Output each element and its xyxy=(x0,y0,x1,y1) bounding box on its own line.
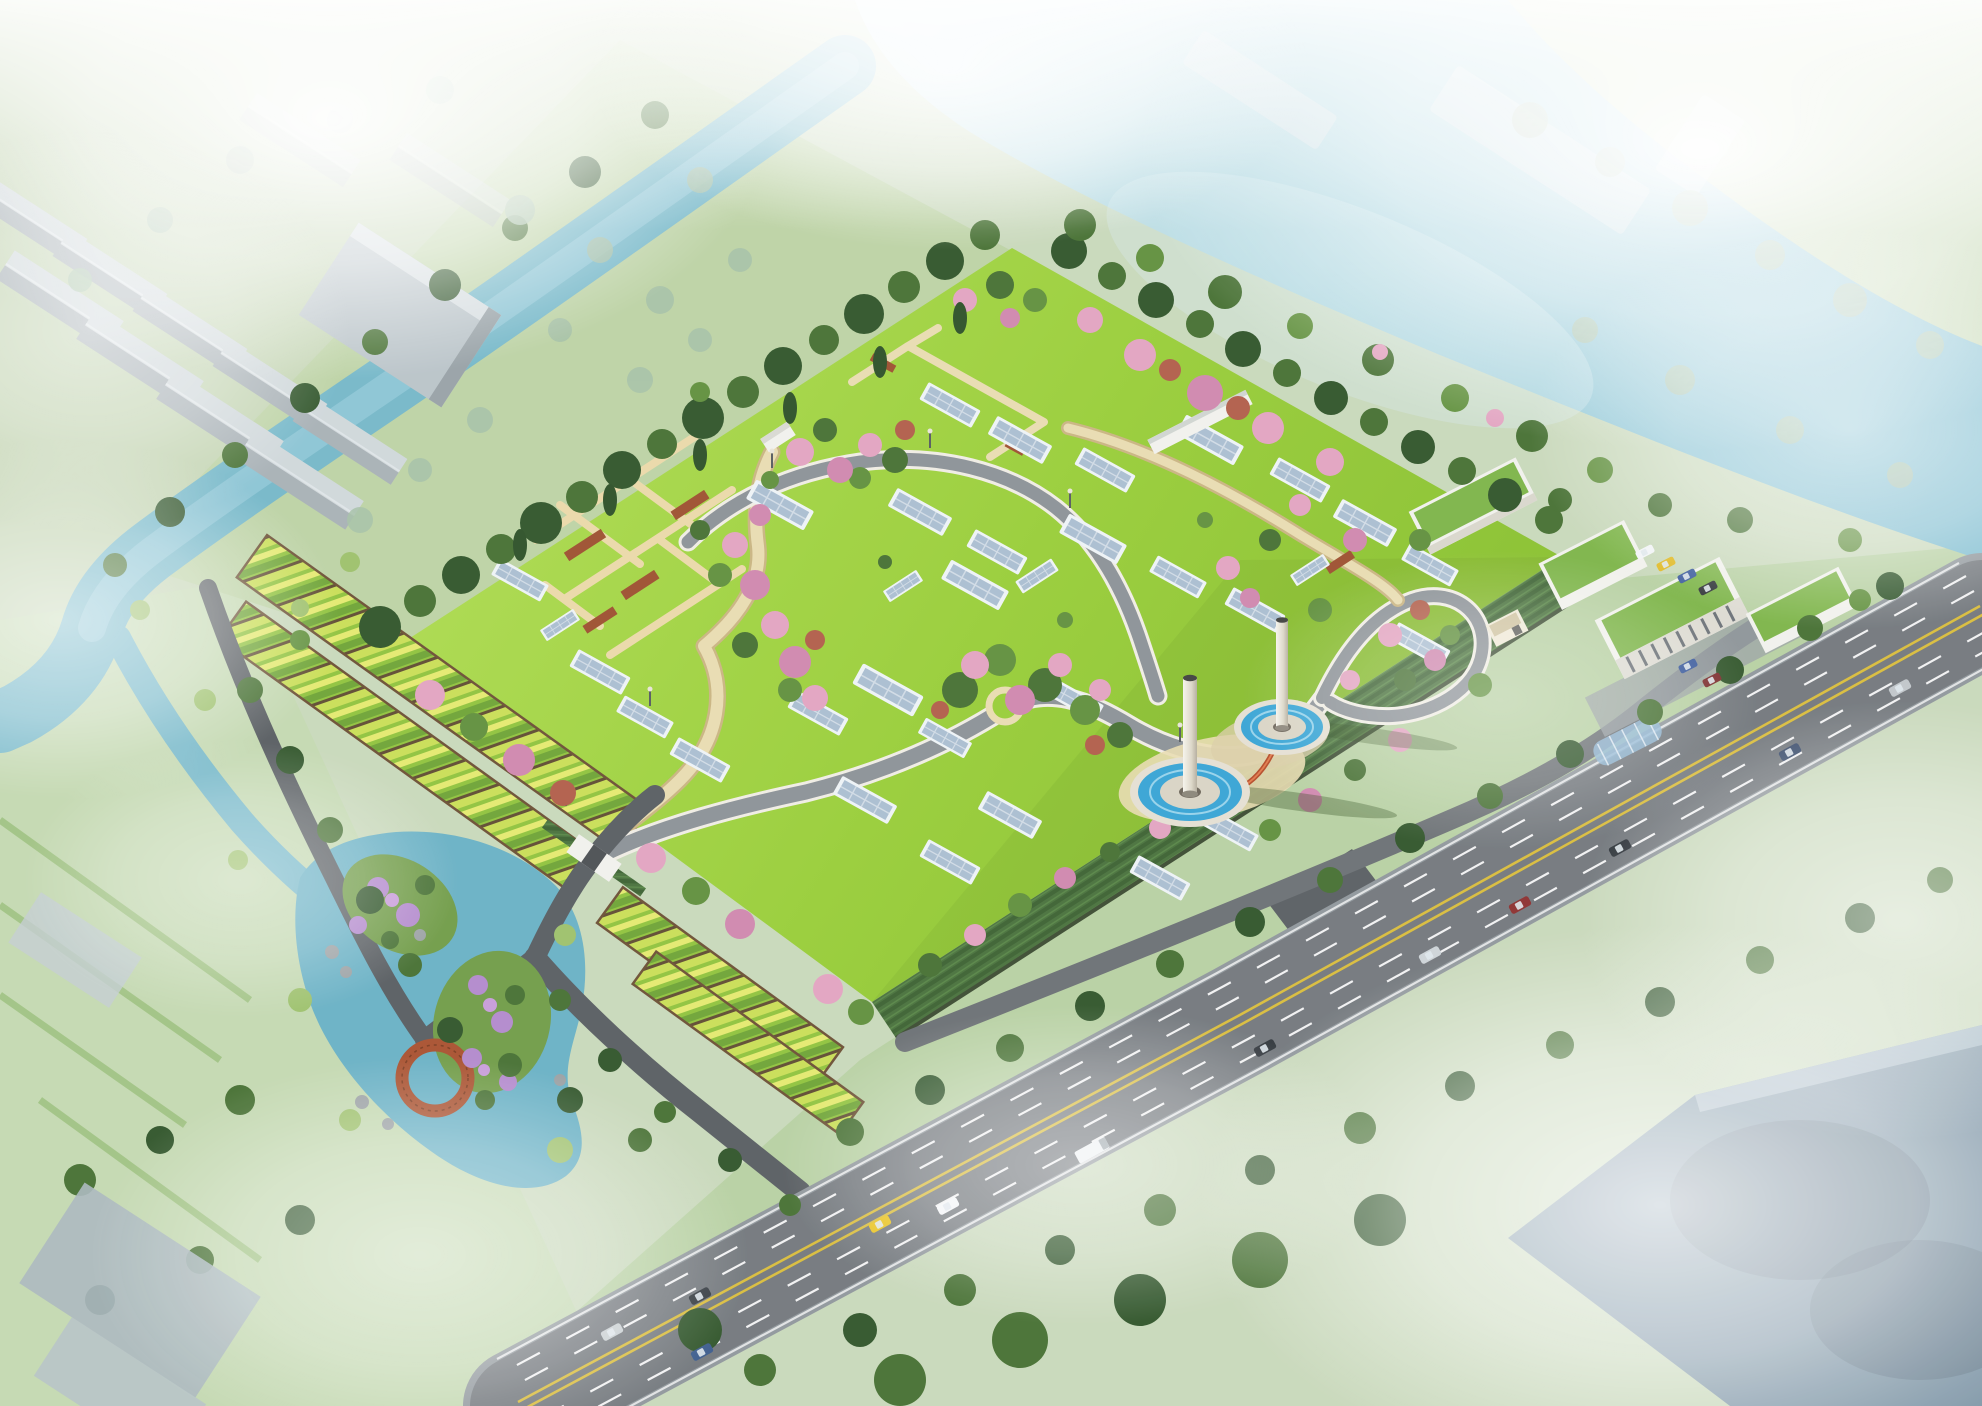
rendering-canvas xyxy=(0,0,1982,1406)
aerial-site-rendering xyxy=(0,0,1982,1406)
fog-layer xyxy=(0,0,1982,1406)
